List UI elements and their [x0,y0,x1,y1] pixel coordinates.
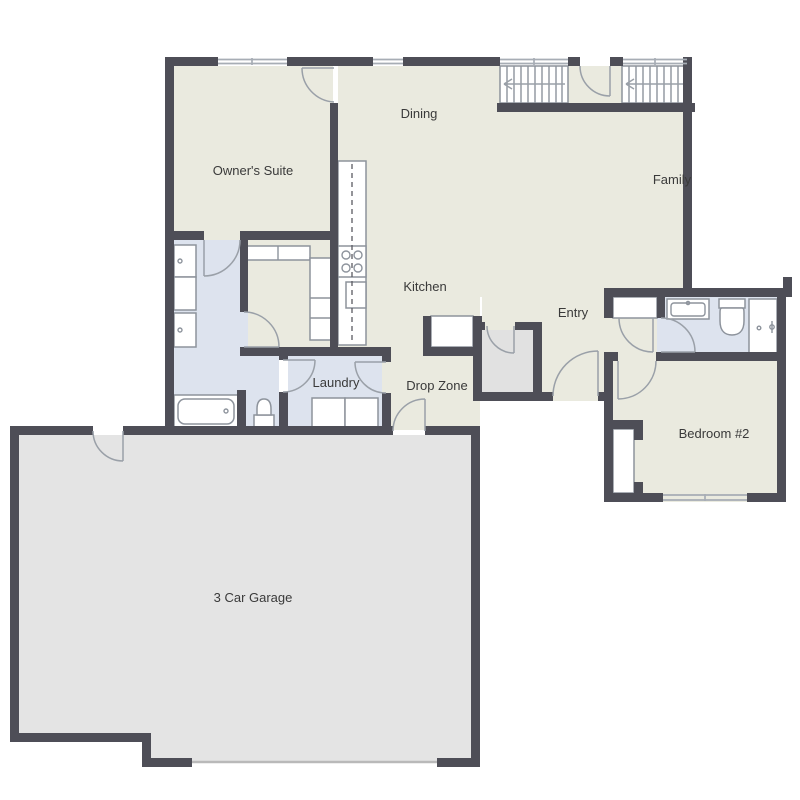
room-owners-suite [174,66,333,240]
washer [312,398,345,430]
toilet-bowl [257,399,271,415]
label-laundry: Laundry [313,375,360,390]
bedroom-closet [613,429,634,493]
bathtub-basin [178,399,234,424]
shower [749,299,777,355]
floor-plan: Owner's Suite Dining Family Kitchen Entr… [0,0,800,800]
label-family: Family [653,172,692,187]
label-bedroom-2: Bedroom #2 [679,426,750,441]
label-entry: Entry [558,305,589,320]
east-wall [777,288,786,502]
dryer [345,398,378,430]
label-owners-suite: Owner's Suite [213,163,294,178]
vanity-cabinet [174,277,196,310]
west-wall [165,57,174,434]
closet-shelf-side [310,258,333,340]
label-kitchen: Kitchen [403,279,446,294]
label-garage: 3 Car Garage [214,590,293,605]
toilet-tank [254,415,274,427]
label-drop-zone: Drop Zone [406,378,467,393]
toilet2-tank [719,299,745,308]
mudroom-bench [431,316,473,347]
coat-closet [613,297,657,318]
kitchen-sink-cabinet [346,282,366,308]
stair-wall [497,103,695,112]
toilet2-bowl [720,308,744,335]
label-dining: Dining [401,106,438,121]
